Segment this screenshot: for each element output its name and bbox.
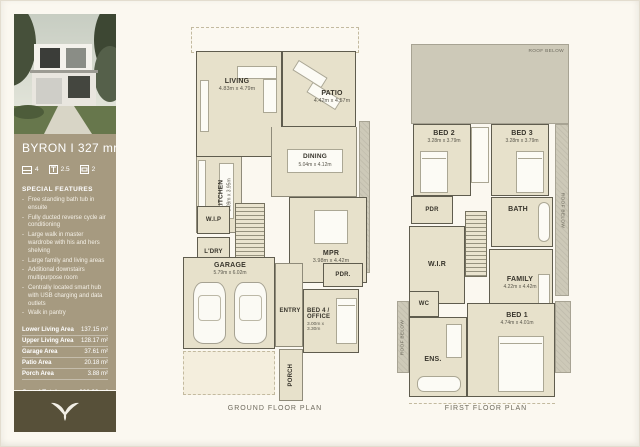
room-name: MPR — [323, 250, 339, 257]
bed — [420, 151, 448, 193]
room-name: WC — [419, 301, 429, 307]
car — [234, 282, 267, 344]
room-label: BATH — [500, 206, 536, 213]
bath-icon — [49, 165, 58, 174]
first-floor-plan: ROOF BELOW BED 2 3.28m x 3.79m BED 3 3.2… — [397, 15, 575, 421]
room-bed4-office: BED 4 / OFFICE 3.00m x 3.30m — [303, 289, 359, 353]
area-label: Lower Living Area — [22, 327, 74, 333]
area-value: 3.88 m² — [88, 371, 108, 377]
roof-below-strip-lower-right — [555, 301, 571, 373]
room-label: BED 2 3.28m x 3.79m — [422, 130, 466, 144]
freestanding-bathtub — [417, 376, 461, 392]
feature-item: Fully ducted reverse cycle air condition… — [22, 215, 108, 231]
bed — [336, 298, 357, 344]
room-dims: 3.00m x 3.30m — [307, 322, 337, 332]
area-value: 20.18 m² — [84, 360, 108, 366]
ground-floor-plan: LIVING 4.83m x 4.79m PATIO 4.42m x 4.57m… — [179, 15, 371, 427]
room-label: LIVING 4.83m x 4.79m — [207, 78, 267, 92]
room-bed3: BED 3 3.28m x 3.79m — [491, 124, 549, 196]
roof-below-label: ROOF BELOW — [528, 49, 564, 54]
areas-table: Lower Living Area 137.15 m² Upper Living… — [22, 325, 108, 400]
wings-logo-icon — [50, 400, 80, 424]
ground-floor-caption: GROUND FLOOR PLAN — [179, 405, 371, 412]
area-row: Upper Living Area 128.17 m² — [22, 336, 108, 347]
room-label: FAMILY 4.22m x 4.42m — [498, 276, 542, 290]
brochure-page: BYRON I 327 mr 4 2.5 — [0, 0, 640, 447]
room-name: L'DRY — [204, 249, 223, 255]
room-name: ENS. — [416, 356, 450, 363]
dining-table: DINING 5.04m x 4.12m — [287, 149, 343, 173]
bed — [516, 151, 544, 193]
room-name: GARAGE — [214, 262, 246, 269]
first-floor-caption: FIRST FLOOR PLAN — [397, 405, 575, 412]
room-garage: GARAGE 5.79m x 6.02m — [183, 257, 275, 349]
room-name: BATH — [500, 206, 536, 213]
driveway — [183, 351, 275, 395]
room-porch: PORCH — [279, 349, 303, 401]
room-powder-upper: PDR — [411, 196, 453, 224]
area-row: Patio Area 20.18 m² — [22, 358, 108, 369]
bed-count-value: 4 — [35, 166, 39, 173]
room-dining: DINING 5.04m x 4.12m — [271, 127, 357, 197]
area-label: Patio Area — [22, 360, 51, 366]
feature-item: Walk in pantry — [22, 310, 108, 318]
room-name: ENTRY — [277, 308, 303, 314]
roof-below-area: ROOF BELOW — [411, 44, 569, 124]
room-dims: 5.79m x 6.02m — [213, 270, 246, 276]
room-name: BED 1 — [506, 312, 528, 319]
bathtub — [538, 202, 550, 242]
room-label: BED 3 3.28m x 3.79m — [500, 130, 544, 144]
room-label: PATIO 4.42m x 4.57m — [309, 90, 355, 104]
room-label: BED 4 / OFFICE 3.00m x 3.30m — [307, 308, 337, 332]
area-row: Lower Living Area 137.15 m² — [22, 325, 108, 336]
roof-below-label: ROOF BELOW — [560, 192, 565, 228]
bath-count: 2.5 — [49, 165, 70, 174]
room-entry: ENTRY — [275, 263, 303, 347]
special-features-list: Free standing bath tub in ensuite Fully … — [22, 197, 108, 318]
room-dims: 5.04m x 4.12m — [298, 162, 331, 168]
info-panel: BYRON I 327 mr 4 2.5 — [14, 134, 116, 390]
room-label: PORCH — [280, 350, 302, 400]
feature-item: Additional downstairs multipurpose room — [22, 267, 108, 283]
special-features-heading: SPECIAL FEATURES — [22, 186, 108, 193]
bed-icon — [22, 166, 32, 174]
area-label: Porch Area — [22, 371, 54, 377]
feature-item: Free standing bath tub in ensuite — [22, 197, 108, 213]
car — [193, 282, 226, 344]
room-name: BED 2 — [433, 130, 455, 137]
roof-below-strip-right: ROOF BELOW — [555, 124, 569, 296]
room-name: PDR — [425, 207, 438, 213]
builder-logo-box — [14, 391, 116, 432]
roof-line-dashed — [191, 27, 359, 53]
area-value: 128.17 m² — [81, 338, 108, 344]
roof-below-strip-left: ROOF BELOW — [397, 301, 409, 373]
room-dims: 3.28m x 3.79m — [505, 138, 538, 144]
room-wc: WC — [409, 291, 439, 317]
car-icon — [80, 165, 89, 174]
robe — [471, 127, 489, 183]
room-name: DINING — [303, 154, 327, 161]
bed — [498, 336, 544, 392]
car-count-value: 2 — [92, 166, 96, 173]
stats-row: 4 2.5 2 — [22, 165, 108, 174]
area-value: 137.15 m² — [81, 327, 108, 333]
room-bed2: BED 2 3.28m x 3.79m — [413, 124, 471, 196]
bath-count-value: 2.5 — [61, 166, 70, 173]
shower — [446, 324, 462, 358]
room-dims: 4.42m x 4.57m — [314, 98, 350, 104]
room-label: ENTRY — [277, 308, 303, 314]
staircase-upper — [465, 211, 487, 277]
room-dims: 4.22m x 4.42m — [503, 284, 536, 290]
room-name: PATIO — [321, 90, 342, 97]
setback-line — [409, 403, 555, 404]
room-bed1: BED 1 4.74m x 4.01m — [467, 303, 555, 397]
room-wip: W.I.P — [197, 206, 230, 234]
room-ensuite: ENS. — [409, 317, 467, 397]
feature-item: Centrally located smart hub with USB cha… — [22, 285, 108, 308]
room-name: PORCH — [288, 364, 294, 387]
room-name: W.I.R — [428, 261, 446, 268]
bed-count: 4 — [22, 166, 39, 174]
room-name: W.I.P — [206, 217, 221, 223]
room-name: LIVING — [225, 78, 250, 85]
room-dims: 4.74m x 4.01m — [500, 320, 533, 326]
house-render-illustration — [14, 14, 116, 134]
room-powder: PDR. — [323, 263, 363, 287]
room-label: GARAGE 5.79m x 6.02m — [198, 262, 262, 276]
room-name: PDR. — [335, 272, 350, 278]
room-living: LIVING 4.83m x 4.79m — [196, 51, 282, 157]
room-label: BED 1 4.74m x 4.01m — [492, 312, 542, 326]
rug — [314, 210, 348, 244]
room-label: ENS. — [416, 356, 450, 363]
room-name: FAMILY — [507, 276, 533, 283]
room-name: BED 3 — [511, 130, 533, 137]
house-photo — [14, 14, 116, 134]
area-label: Upper Living Area — [22, 338, 73, 344]
car-count: 2 — [80, 165, 96, 174]
room-dims: 4.83m x 4.79m — [219, 86, 255, 92]
roof-below-label: ROOF BELOW — [401, 319, 406, 355]
feature-item: Large walk in master wardrobe with his a… — [22, 232, 108, 255]
room-name: BED 4 / OFFICE — [307, 308, 337, 321]
area-value: 37.61 m² — [84, 349, 108, 355]
feature-item: Large family and living areas — [22, 258, 108, 266]
room-patio: PATIO 4.42m x 4.57m — [282, 51, 356, 127]
room-dims: 3.28m x 3.79m — [427, 138, 460, 144]
design-title: BYRON I 327 mr — [22, 141, 108, 155]
area-row: Porch Area 3.88 m² — [22, 369, 108, 380]
area-label: Garage Area — [22, 349, 57, 355]
room-bath: BATH — [491, 197, 553, 247]
area-row: Garage Area 37.61 m² — [22, 347, 108, 358]
